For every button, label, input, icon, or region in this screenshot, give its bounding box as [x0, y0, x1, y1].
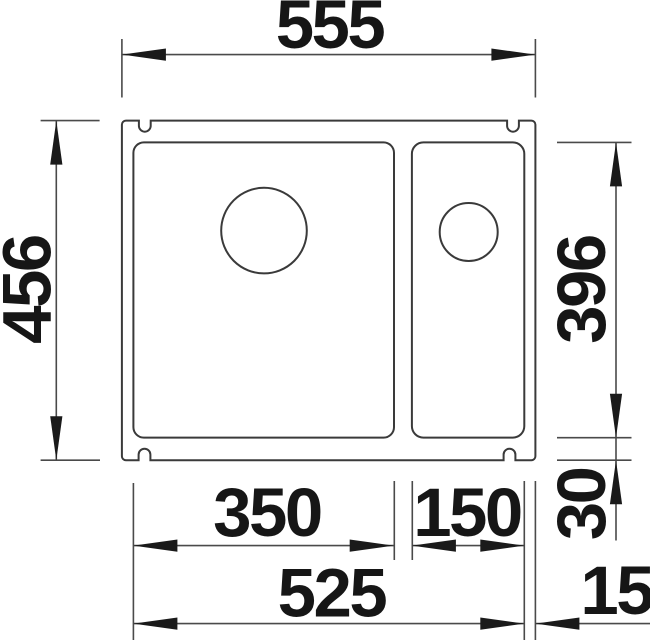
svg-text:15: 15 [580, 552, 650, 629]
svg-text:30: 30 [543, 468, 620, 540]
svg-text:150: 150 [413, 474, 521, 551]
svg-text:555: 555 [276, 0, 385, 63]
svg-text:350: 350 [213, 474, 321, 551]
svg-text:396: 396 [543, 236, 620, 344]
svg-text:456: 456 [0, 236, 66, 344]
svg-text:525: 525 [278, 555, 387, 632]
